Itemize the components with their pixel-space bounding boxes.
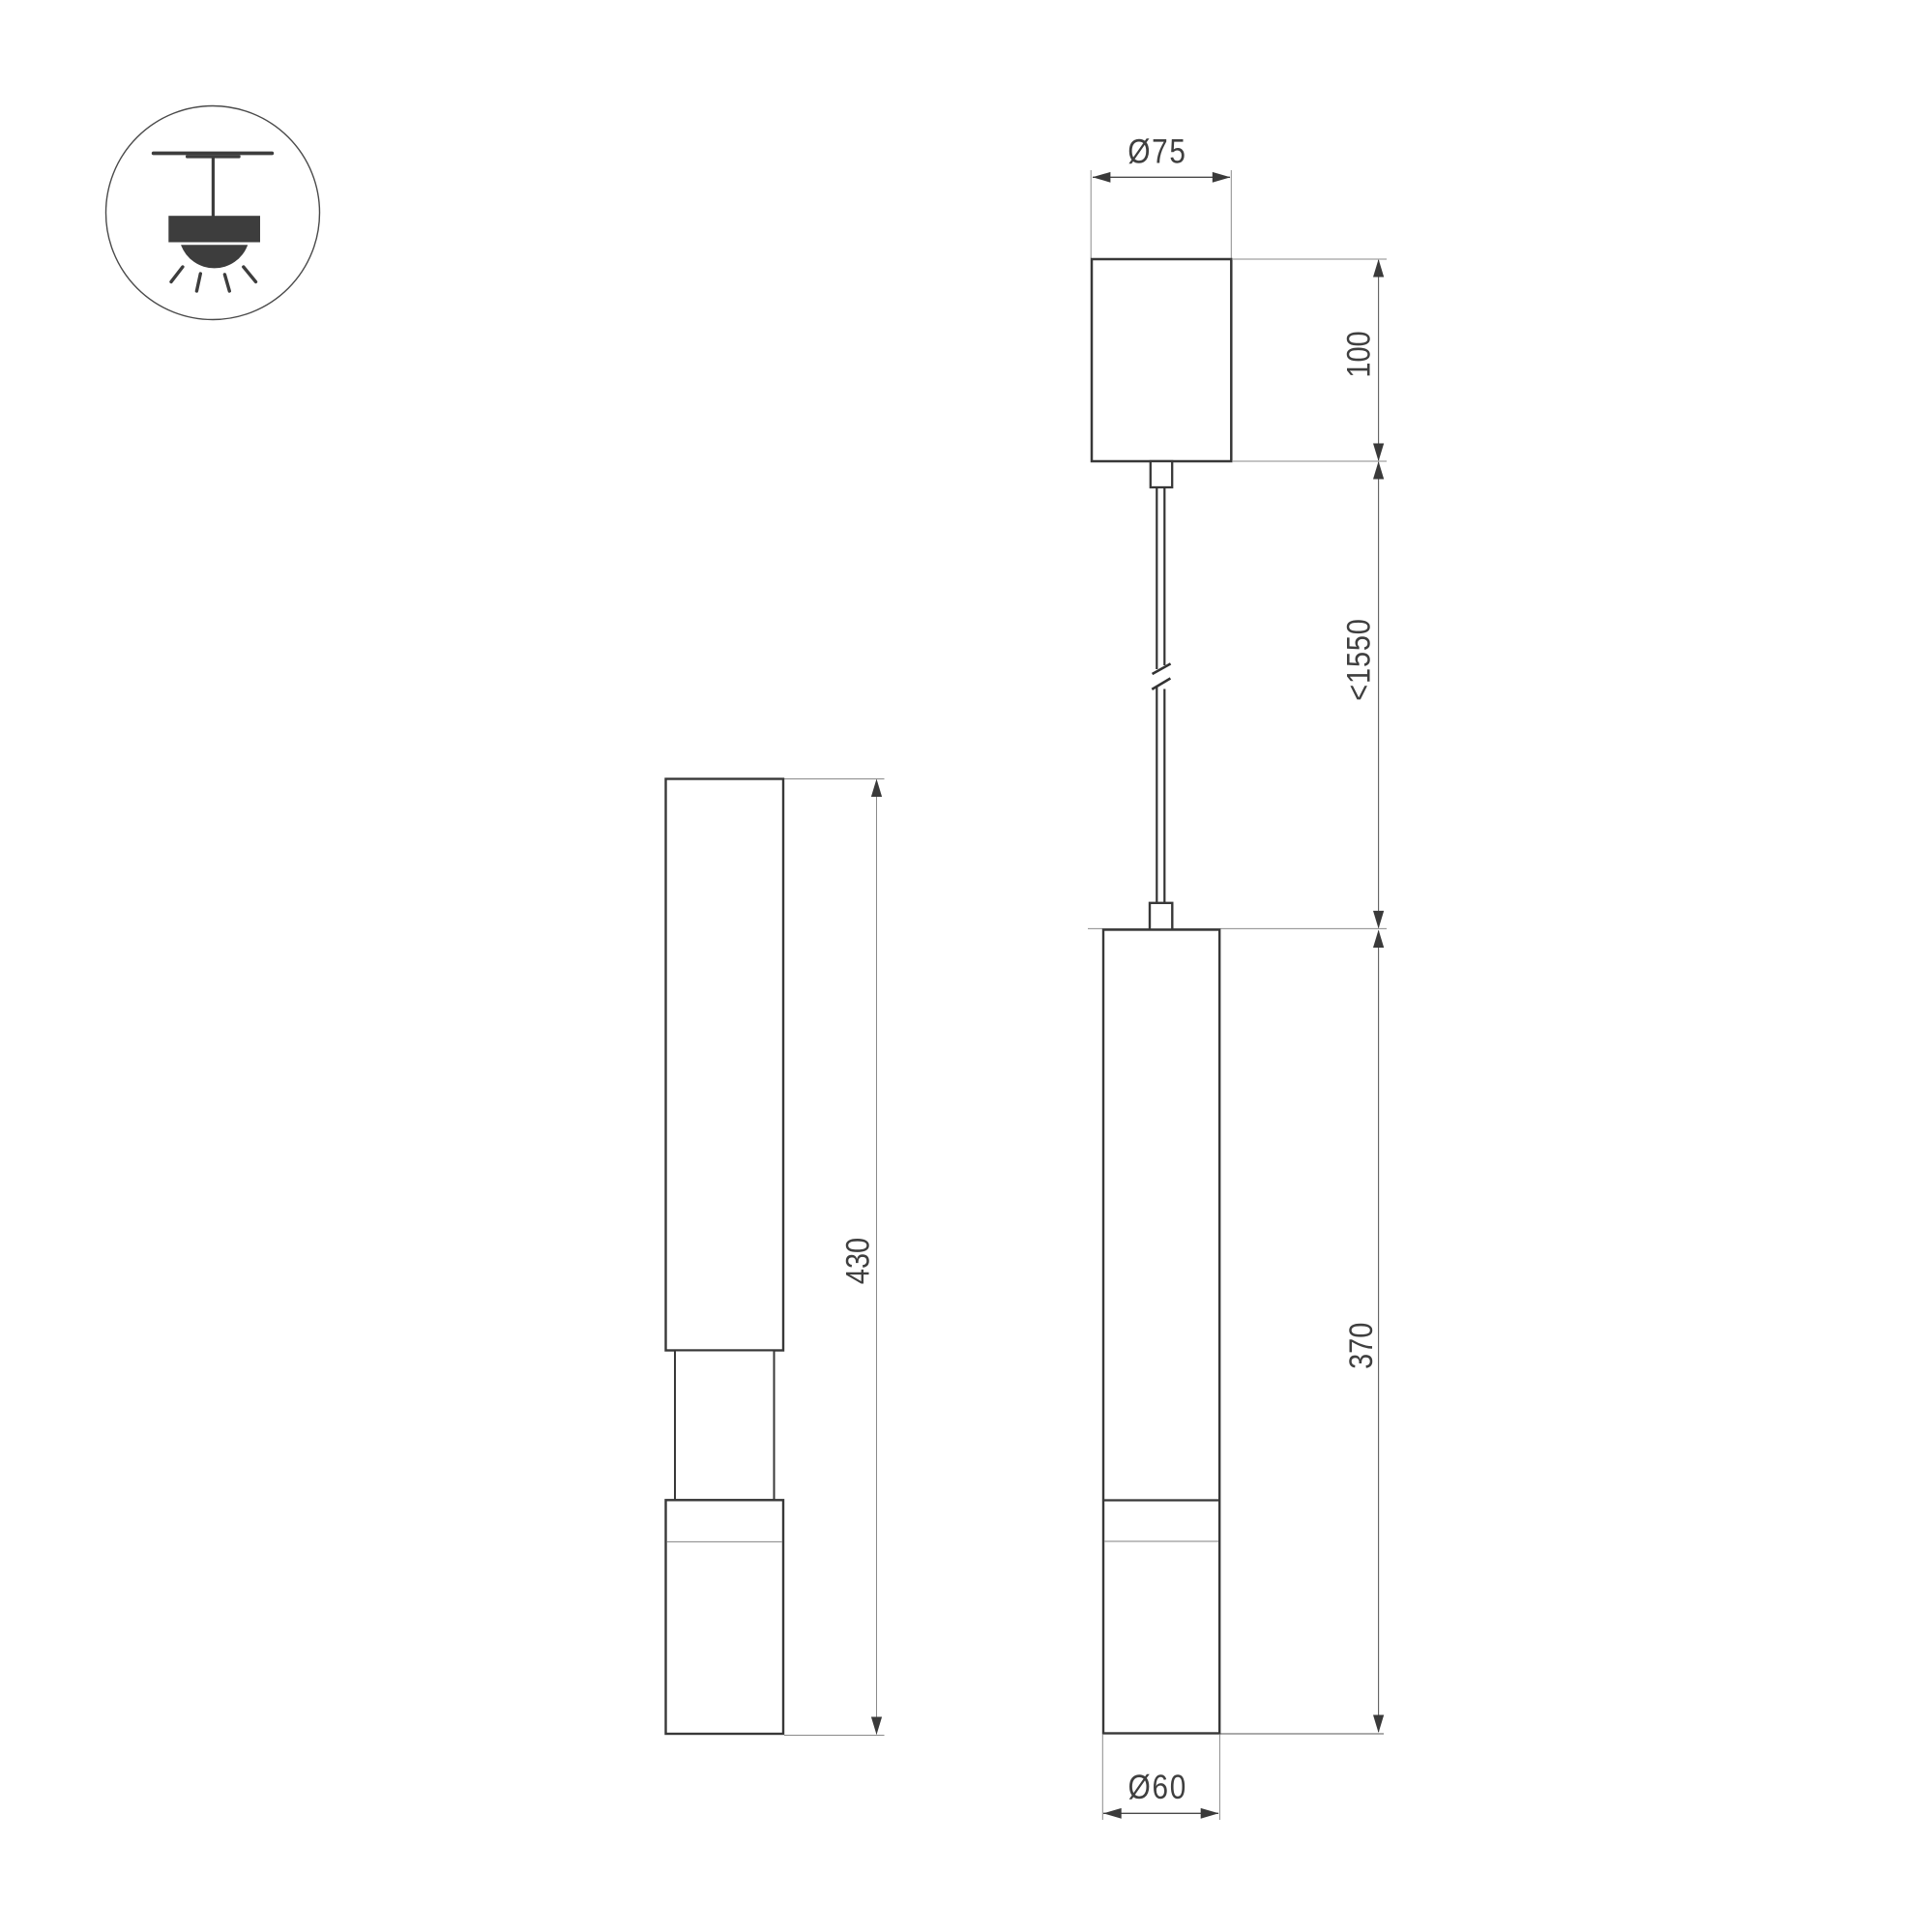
svg-text:Ø60: Ø60 — [1128, 1769, 1187, 1806]
svg-text:Ø75: Ø75 — [1127, 132, 1186, 170]
svg-text:430: 430 — [838, 1238, 876, 1284]
svg-text:100: 100 — [1339, 331, 1377, 377]
svg-text:<1550: <1550 — [1339, 618, 1377, 700]
svg-text:370: 370 — [1342, 1323, 1380, 1369]
